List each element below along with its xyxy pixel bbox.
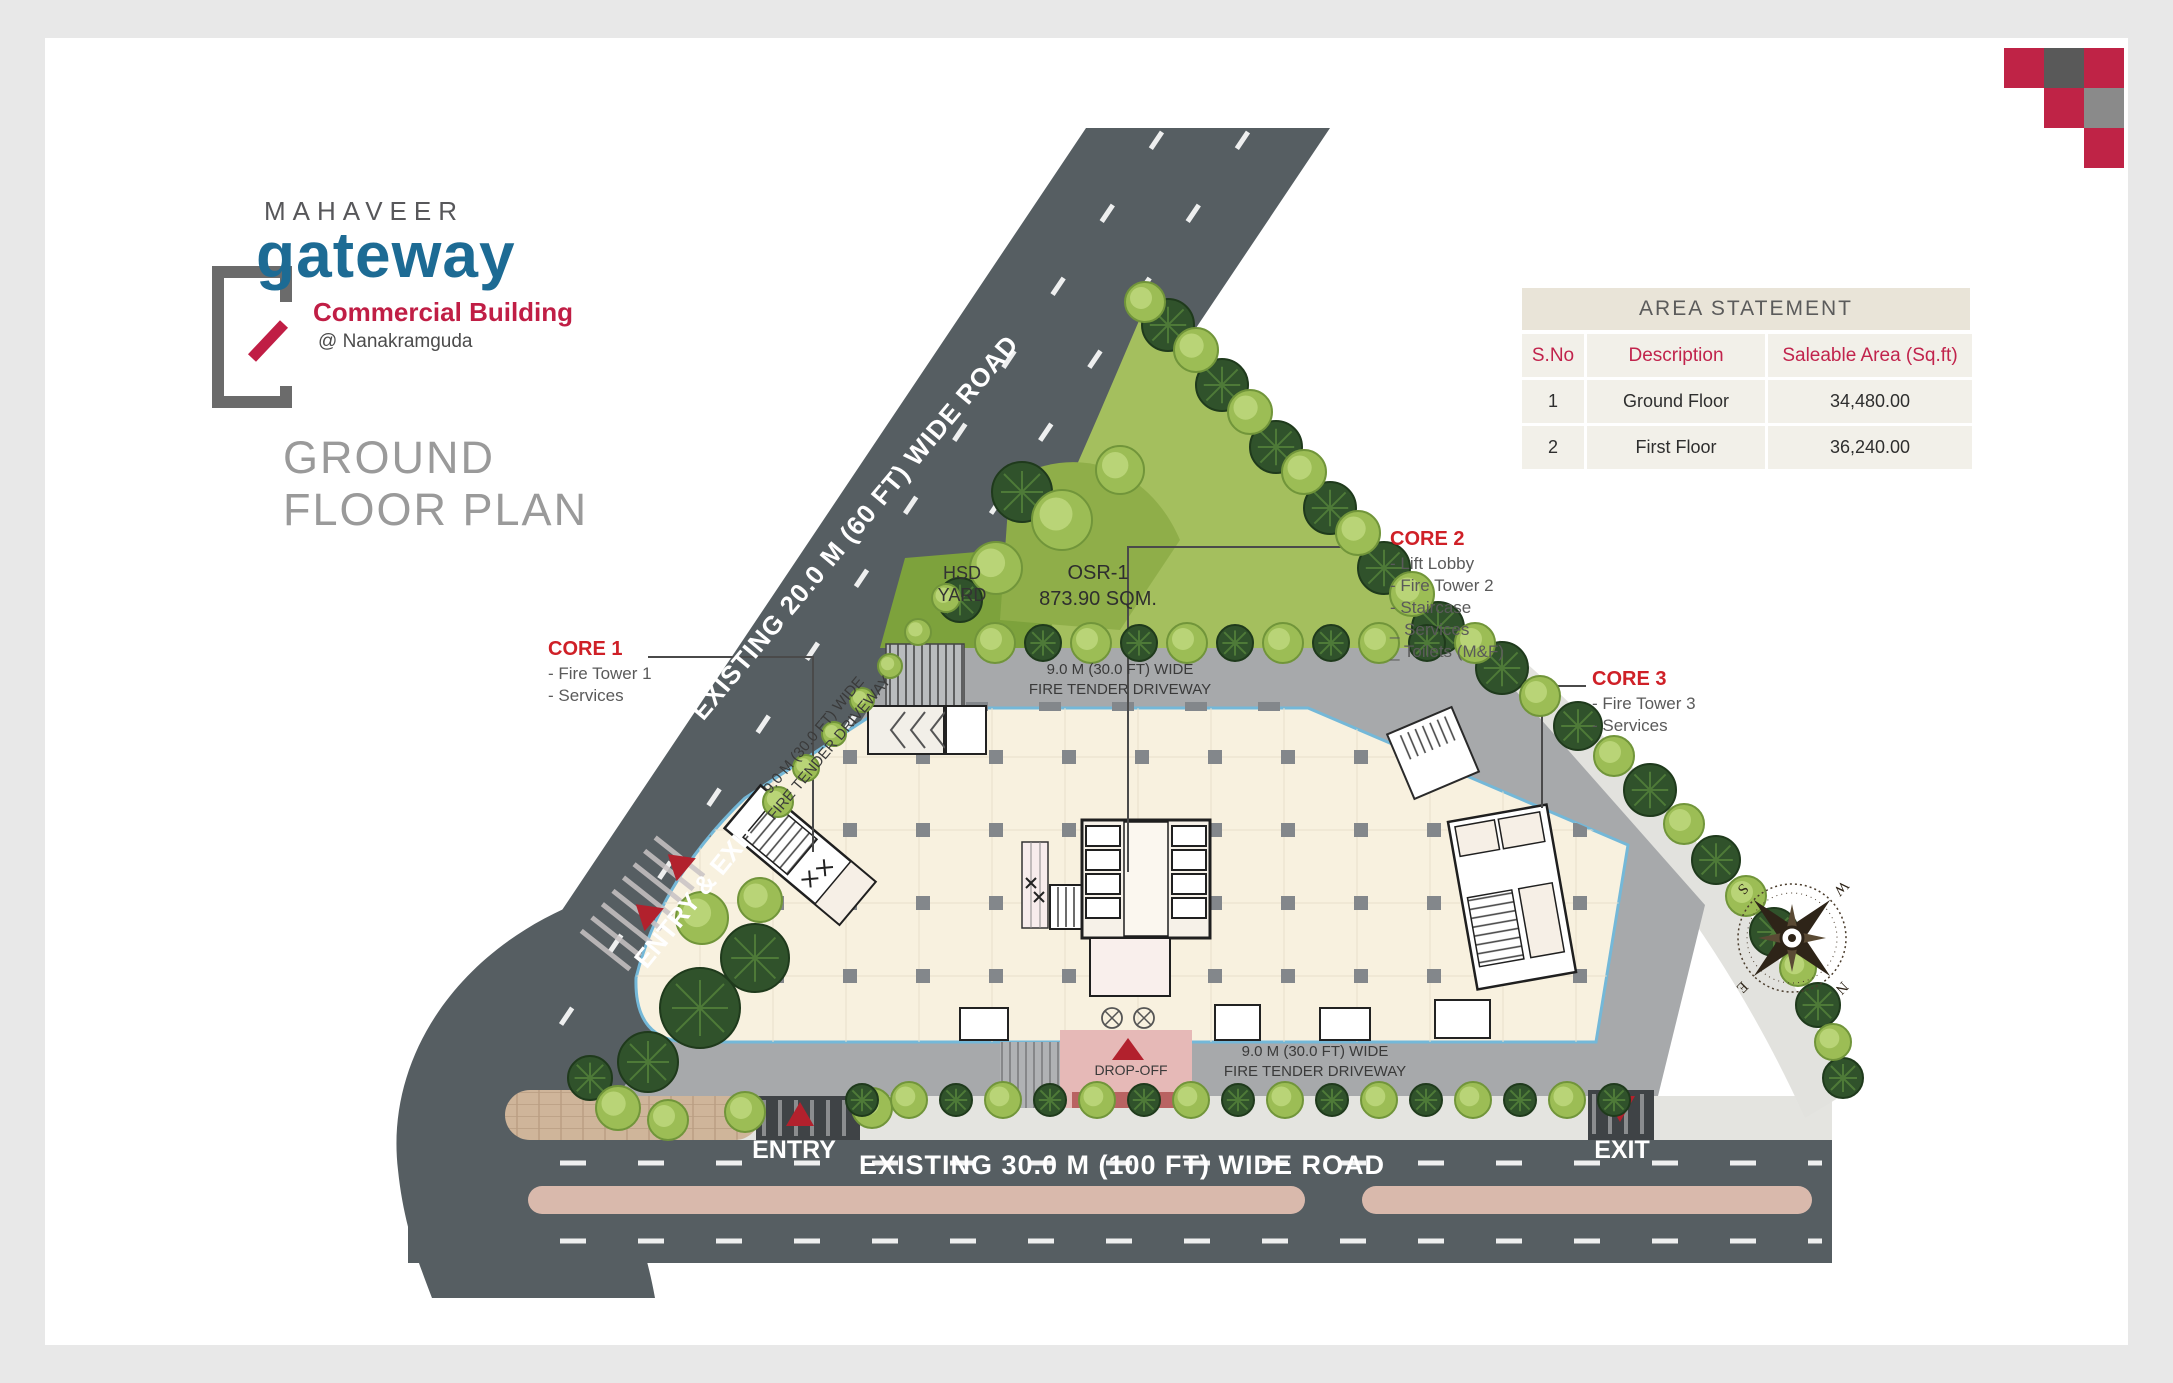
page: { "logo": { "brand": "MAHAVEER", "name":…	[0, 0, 2173, 1383]
page-title: GROUND FLOOR PLAN	[283, 432, 588, 536]
road-median	[528, 1186, 1305, 1214]
logo-name: gateway	[256, 218, 516, 292]
table-row: Ground Floor	[1587, 380, 1765, 423]
col-description: Description	[1587, 334, 1765, 377]
osr-label: OSR-1873.90 SQM.	[1028, 560, 1168, 612]
logo-subtitle: Commercial Building	[313, 297, 573, 328]
table-title: AREA STATEMENT	[1522, 288, 1970, 330]
entry-label: ENTRY	[744, 1136, 844, 1165]
table-row: 34,480.00	[1768, 380, 1972, 423]
col-area: Saleable Area (Sq.ft)	[1768, 334, 1972, 377]
road-label-bottom: EXISTING 30.0 M (100 FT) WIDE ROAD	[822, 1150, 1422, 1181]
core2-callout: CORE 2 - Lift Lobby - Fire Tower 2 - Sta…	[1390, 528, 1504, 663]
col-sno: S.No	[1522, 334, 1584, 377]
drop-off-label: DROP-OFF	[1086, 1062, 1176, 1078]
table-row: 1	[1522, 380, 1584, 423]
core3-callout: CORE 3 - Fire Tower 3 - Services	[1592, 668, 1696, 737]
logo-location: @ Nanakramguda	[318, 331, 472, 353]
area-statement-table: AREA STATEMENT S.No Description Saleable…	[1522, 288, 1970, 469]
table-row: First Floor	[1587, 426, 1765, 469]
driveway-label-bottom: 9.0 M (30.0 FT) WIDEFIRE TENDER DRIVEWAY	[1210, 1042, 1420, 1082]
road-median	[1362, 1186, 1812, 1214]
table-row: 2	[1522, 426, 1584, 469]
core1-callout: CORE 1 - Fire Tower 1 - Services	[548, 638, 652, 707]
exit-label: EXIT	[1572, 1136, 1672, 1165]
hsd-yard-label: HSDYARD	[920, 562, 1004, 606]
table-row: 36,240.00	[1768, 426, 1972, 469]
driveway-label-top: 9.0 M (30.0 FT) WIDEFIRE TENDER DRIVEWAY	[1020, 660, 1220, 700]
